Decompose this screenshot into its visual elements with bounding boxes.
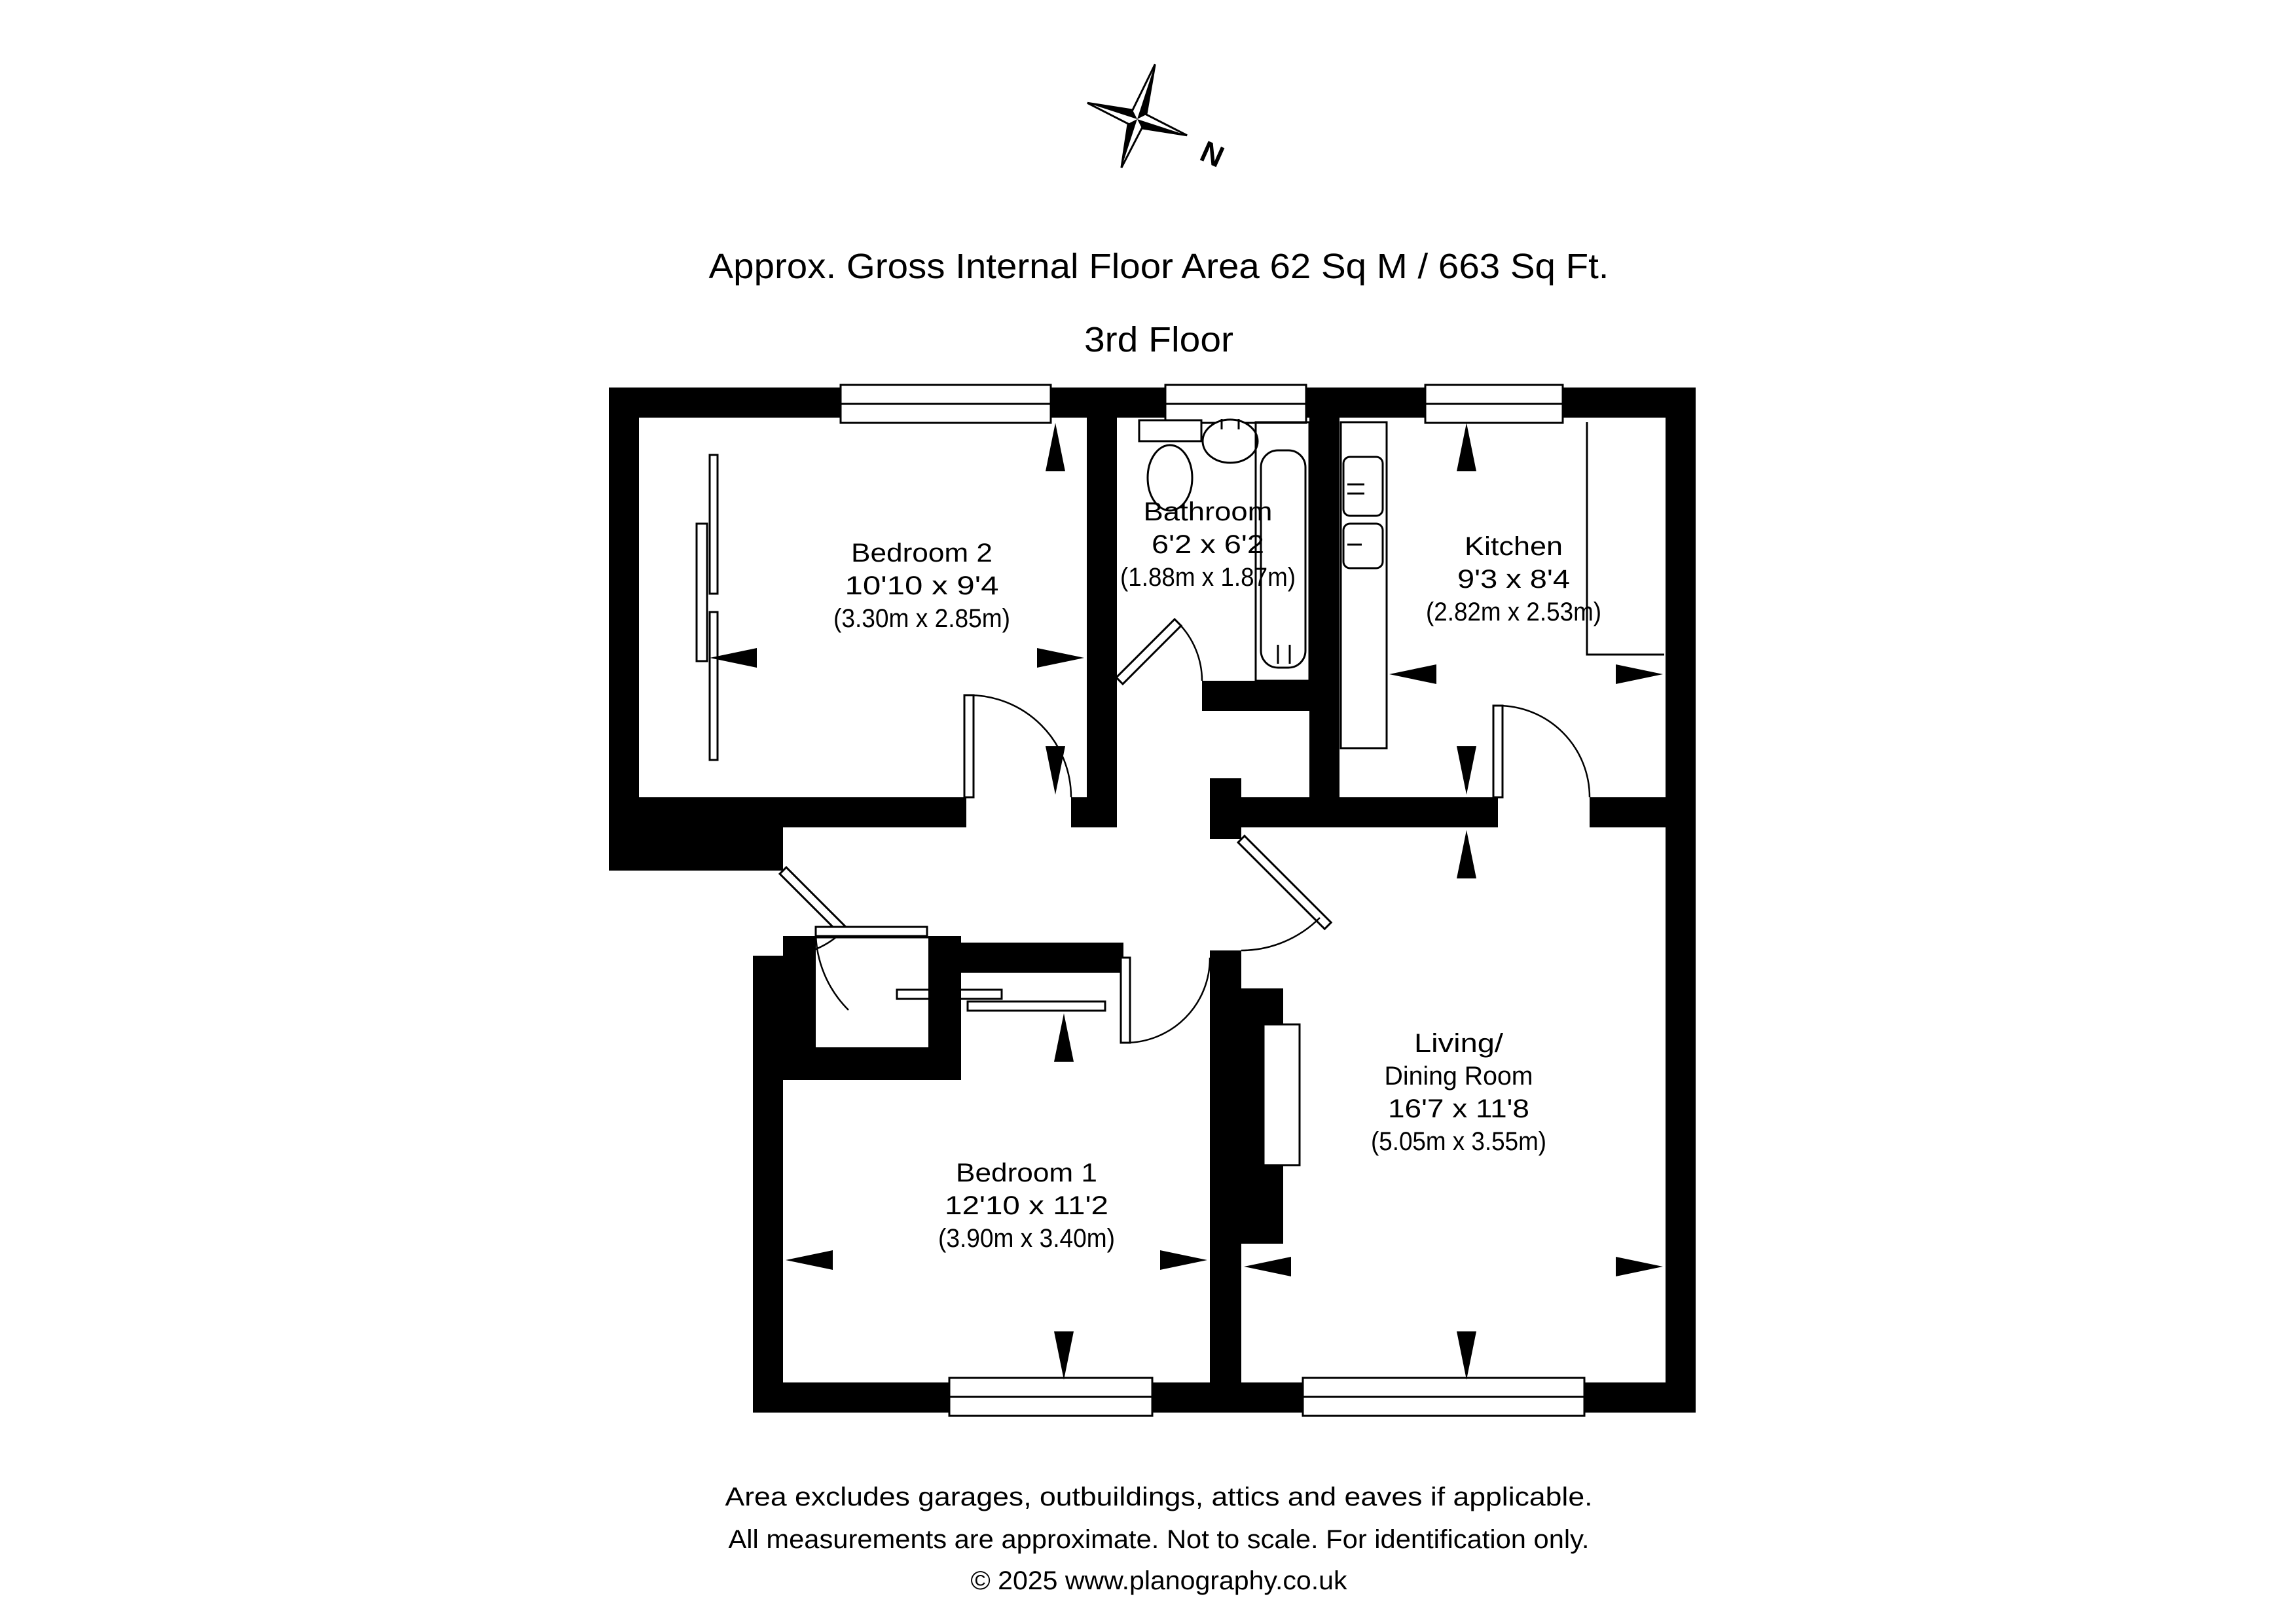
wall-bed1-top: [961, 943, 1123, 973]
measure-arrow-right: [1160, 1250, 1207, 1270]
floorplan-page: N Approx. Gross Internal Floor Area 62 S…: [0, 0, 2296, 1624]
wall-closet-right: [928, 936, 961, 1080]
label-kitchen: Kitchen 9'3 x 8'4 (2.82m x 2.53m): [1426, 532, 1601, 626]
svg-text:(3.30m x 2.85m): (3.30m x 2.85m): [833, 604, 1010, 633]
doors: [780, 619, 1590, 1043]
measure-arrow-left: [1389, 664, 1436, 684]
measure-arrow-up: [1457, 830, 1476, 878]
door-kitchen: [1493, 706, 1590, 797]
footer-copyright: © 2025 www.planography.co.uk: [971, 1566, 1348, 1595]
label-bedroom2: Bedroom 2 10'10 x 9'4 (3.30m x 2.85m): [833, 539, 1010, 633]
svg-text:10'10 x 9'4: 10'10 x 9'4: [845, 571, 999, 600]
svg-text:(5.05m x 3.55m): (5.05m x 3.55m): [1371, 1127, 1546, 1156]
bedroom2-wardrobe-panel: [697, 524, 707, 661]
door-bathroom: [1116, 619, 1202, 684]
svg-text:Kitchen: Kitchen: [1465, 532, 1563, 561]
svg-text:9'3 x 8'4: 9'3 x 8'4: [1457, 565, 1570, 594]
measure-arrow-down: [1046, 746, 1065, 795]
bedroom1-wardrobe-panel: [968, 1001, 1105, 1011]
svg-text:(2.82m x 2.53m): (2.82m x 2.53m): [1426, 598, 1601, 626]
plan-floor-label: 3rd Floor: [1084, 320, 1233, 359]
footer-line-1: Area excludes garages, outbuildings, att…: [725, 1483, 1593, 1511]
measure-arrow-right: [1616, 664, 1663, 684]
wall-bed2-right: [1087, 418, 1117, 797]
kitchen-appliance: [1343, 524, 1383, 568]
wall-bath-kitchen-divider: [1309, 418, 1339, 826]
living-radiator: [1264, 1024, 1300, 1165]
bedroom2-wardrobe-panel: [710, 612, 718, 760]
svg-text:(3.90m x 3.40m): (3.90m x 3.40m): [938, 1224, 1115, 1253]
wall-right: [1666, 388, 1696, 1413]
wall-hall-left: [753, 956, 783, 1413]
svg-text:Dining Room: Dining Room: [1385, 1062, 1533, 1091]
compass-rose: [1072, 48, 1205, 184]
measure-arrow-right: [1037, 648, 1084, 668]
footer-disclaimer: Area excludes garages, outbuildings, att…: [725, 1483, 1593, 1595]
measure-arrow-left: [786, 1250, 833, 1270]
window-bedroom1: [949, 1378, 1152, 1416]
measure-arrow-up: [1457, 423, 1476, 471]
label-bedroom1: Bedroom 1 12'10 x 11'2 (3.90m x 3.40m): [938, 1159, 1115, 1253]
door-living: [1238, 836, 1331, 950]
measure-arrow-down: [1457, 746, 1476, 795]
bathroom-sink: [1203, 420, 1258, 463]
window-bathroom: [1165, 385, 1306, 423]
measure-arrow-down: [1457, 1331, 1476, 1380]
measure-arrow-up: [1046, 423, 1065, 471]
wall-living-left-lower: [1210, 950, 1241, 1382]
wall-living-left-upper: [1210, 778, 1241, 839]
window-kitchen: [1425, 385, 1563, 423]
bedroom2-wardrobe-panel: [710, 455, 718, 594]
compass-north-label: N: [1195, 134, 1230, 174]
measure-arrow-down: [1054, 1331, 1074, 1380]
svg-text:Bedroom 2: Bedroom 2: [851, 539, 993, 568]
svg-text:6'2 x 6'2: 6'2 x 6'2: [1152, 530, 1264, 559]
wall-living-top-right: [1590, 797, 1696, 827]
svg-text:16'7 x 11'8: 16'7 x 11'8: [1388, 1094, 1529, 1123]
svg-text:12'10 x 11'2: 12'10 x 11'2: [945, 1191, 1108, 1220]
measure-arrow-right: [1616, 1257, 1663, 1276]
bathtub: [1261, 450, 1305, 668]
window-living: [1303, 1378, 1584, 1416]
measure-arrow-up: [1054, 1013, 1074, 1062]
svg-text:Bathroom: Bathroom: [1144, 497, 1273, 526]
wall-living-top: [1222, 797, 1498, 827]
wall-bed2-bottom-stub: [1071, 797, 1117, 827]
window-bedroom2: [841, 385, 1051, 423]
footer-line-2: All measurements are approximate. Not to…: [729, 1525, 1590, 1554]
label-living-dining: Living/ Dining Room 16'7 x 11'8 (5.05m x…: [1371, 1029, 1546, 1156]
measure-arrow-left: [1244, 1257, 1291, 1276]
svg-text:Bedroom 1: Bedroom 1: [956, 1159, 1097, 1187]
wall-bed2-bottom: [609, 797, 966, 827]
door-bedroom1: [1121, 958, 1210, 1043]
kitchen-appliance: [1343, 457, 1383, 516]
svg-text:Living/: Living/: [1414, 1029, 1504, 1058]
floorplan-canvas: N Approx. Gross Internal Floor Area 62 S…: [0, 0, 2296, 1624]
plan-title: Approx. Gross Internal Floor Area 62 Sq …: [709, 247, 1609, 286]
toilet-cistern: [1139, 420, 1201, 441]
wall-bath-bottom: [1202, 681, 1316, 711]
svg-text:(1.88m x 1.87m): (1.88m x 1.87m): [1120, 563, 1296, 592]
